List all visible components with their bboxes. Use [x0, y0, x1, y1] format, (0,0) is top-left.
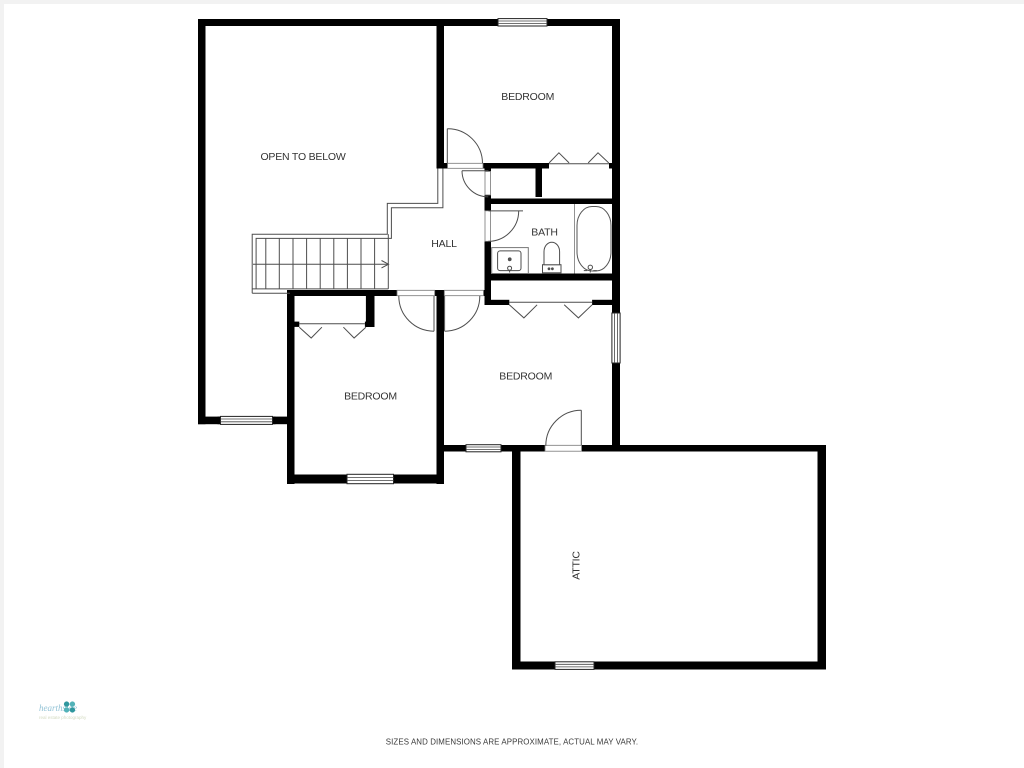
svg-text:BATH: BATH: [531, 227, 557, 239]
svg-text:real estate photography: real estate photography: [39, 715, 87, 720]
svg-text:BEDROOM: BEDROOM: [344, 391, 397, 403]
svg-text:OPEN TO BELOW: OPEN TO BELOW: [260, 151, 345, 163]
svg-text:HALL: HALL: [431, 238, 457, 250]
svg-text:SIZES AND DIMENSIONS ARE APPRO: SIZES AND DIMENSIONS ARE APPROXIMATE, AC…: [386, 738, 638, 747]
svg-text:BEDROOM: BEDROOM: [499, 370, 552, 382]
svg-text:ATTIC: ATTIC: [571, 551, 583, 580]
svg-text:BEDROOM: BEDROOM: [501, 91, 554, 103]
